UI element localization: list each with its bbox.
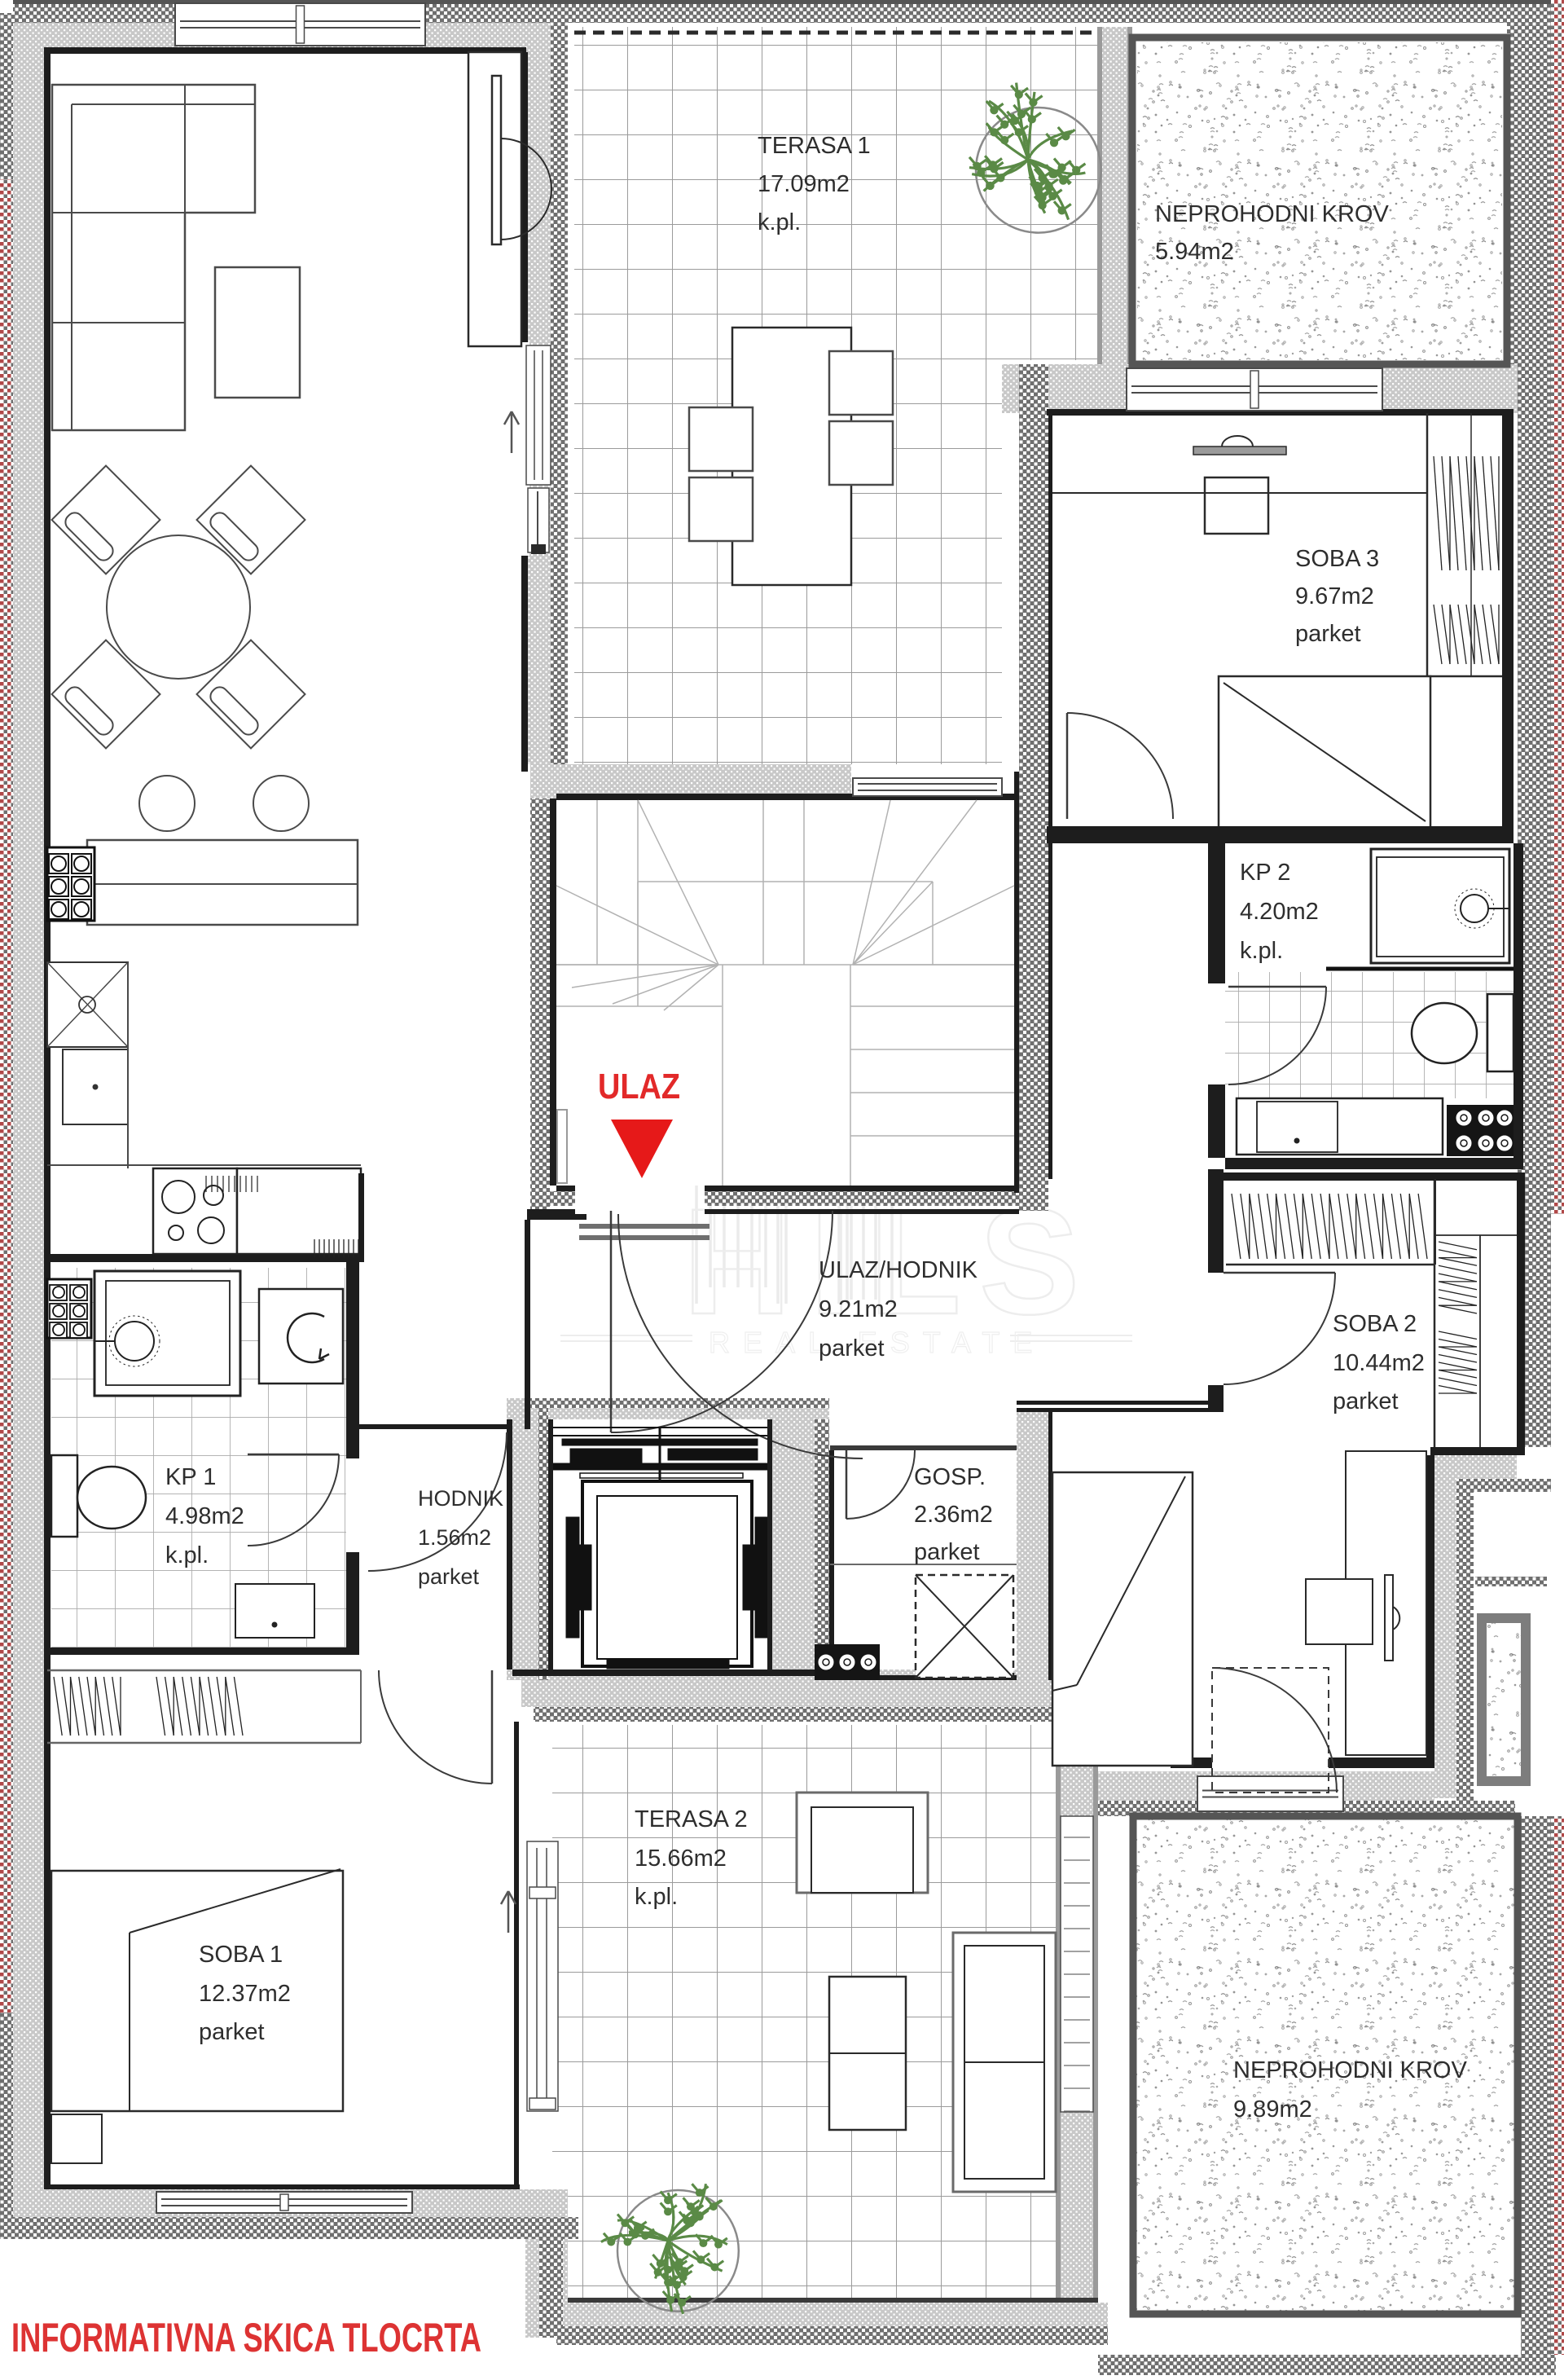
svg-text:k.pl.: k.pl.: [635, 1884, 678, 1910]
svg-text:4.98m2: 4.98m2: [165, 1503, 244, 1529]
svg-text:5.94m2: 5.94m2: [1155, 239, 1234, 265]
svg-text:parket: parket: [1295, 621, 1361, 647]
svg-text:SOBA 3: SOBA 3: [1295, 546, 1379, 572]
svg-text:SOBA 2: SOBA 2: [1333, 1311, 1417, 1337]
svg-text:NEPROHODNI KROV: NEPROHODNI KROV: [1155, 201, 1389, 227]
svg-text:HODNIK: HODNIK: [418, 1486, 503, 1511]
svg-text:NEPROHODNI KROV: NEPROHODNI KROV: [1233, 2057, 1467, 2083]
svg-text:TERASA 1: TERASA 1: [758, 133, 871, 159]
svg-text:15.66m2: 15.66m2: [635, 1845, 727, 1872]
svg-text:TERASA 2: TERASA 2: [635, 1806, 748, 1832]
svg-text:KP 1: KP 1: [165, 1464, 216, 1490]
svg-text:4.20m2: 4.20m2: [1240, 899, 1319, 925]
svg-text:INFORMATIVNA SKICA TLOCRTA: INFORMATIVNA SKICA TLOCRTA: [11, 2315, 481, 2360]
svg-text:parket: parket: [418, 1564, 480, 1589]
svg-text:2.36m2: 2.36m2: [914, 1502, 993, 1528]
svg-text:9.21m2: 9.21m2: [819, 1296, 898, 1322]
svg-text:parket: parket: [199, 2019, 265, 2045]
svg-text:12.37m2: 12.37m2: [199, 1981, 291, 2007]
svg-text:17.09m2: 17.09m2: [758, 171, 850, 197]
svg-text:ULAZ: ULAZ: [598, 1067, 680, 1106]
svg-text:parket: parket: [1333, 1388, 1399, 1414]
svg-text:10.44m2: 10.44m2: [1333, 1350, 1425, 1376]
svg-text:k.pl.: k.pl.: [1240, 938, 1283, 964]
svg-text:parket: parket: [914, 1539, 980, 1565]
svg-text:parket: parket: [819, 1335, 885, 1362]
svg-text:KP 2: KP 2: [1240, 860, 1290, 886]
svg-text:GOSP.: GOSP.: [914, 1464, 986, 1490]
svg-text:k.pl.: k.pl.: [758, 209, 801, 235]
svg-text:9.67m2: 9.67m2: [1295, 583, 1374, 609]
svg-text:9.89m2: 9.89m2: [1233, 2096, 1312, 2123]
svg-text:SOBA 1: SOBA 1: [199, 1942, 283, 1968]
svg-text:ULAZ/HODNIK: ULAZ/HODNIK: [819, 1257, 978, 1283]
svg-text:1.56m2: 1.56m2: [418, 1525, 491, 1550]
svg-text:k.pl.: k.pl.: [165, 1542, 209, 1568]
